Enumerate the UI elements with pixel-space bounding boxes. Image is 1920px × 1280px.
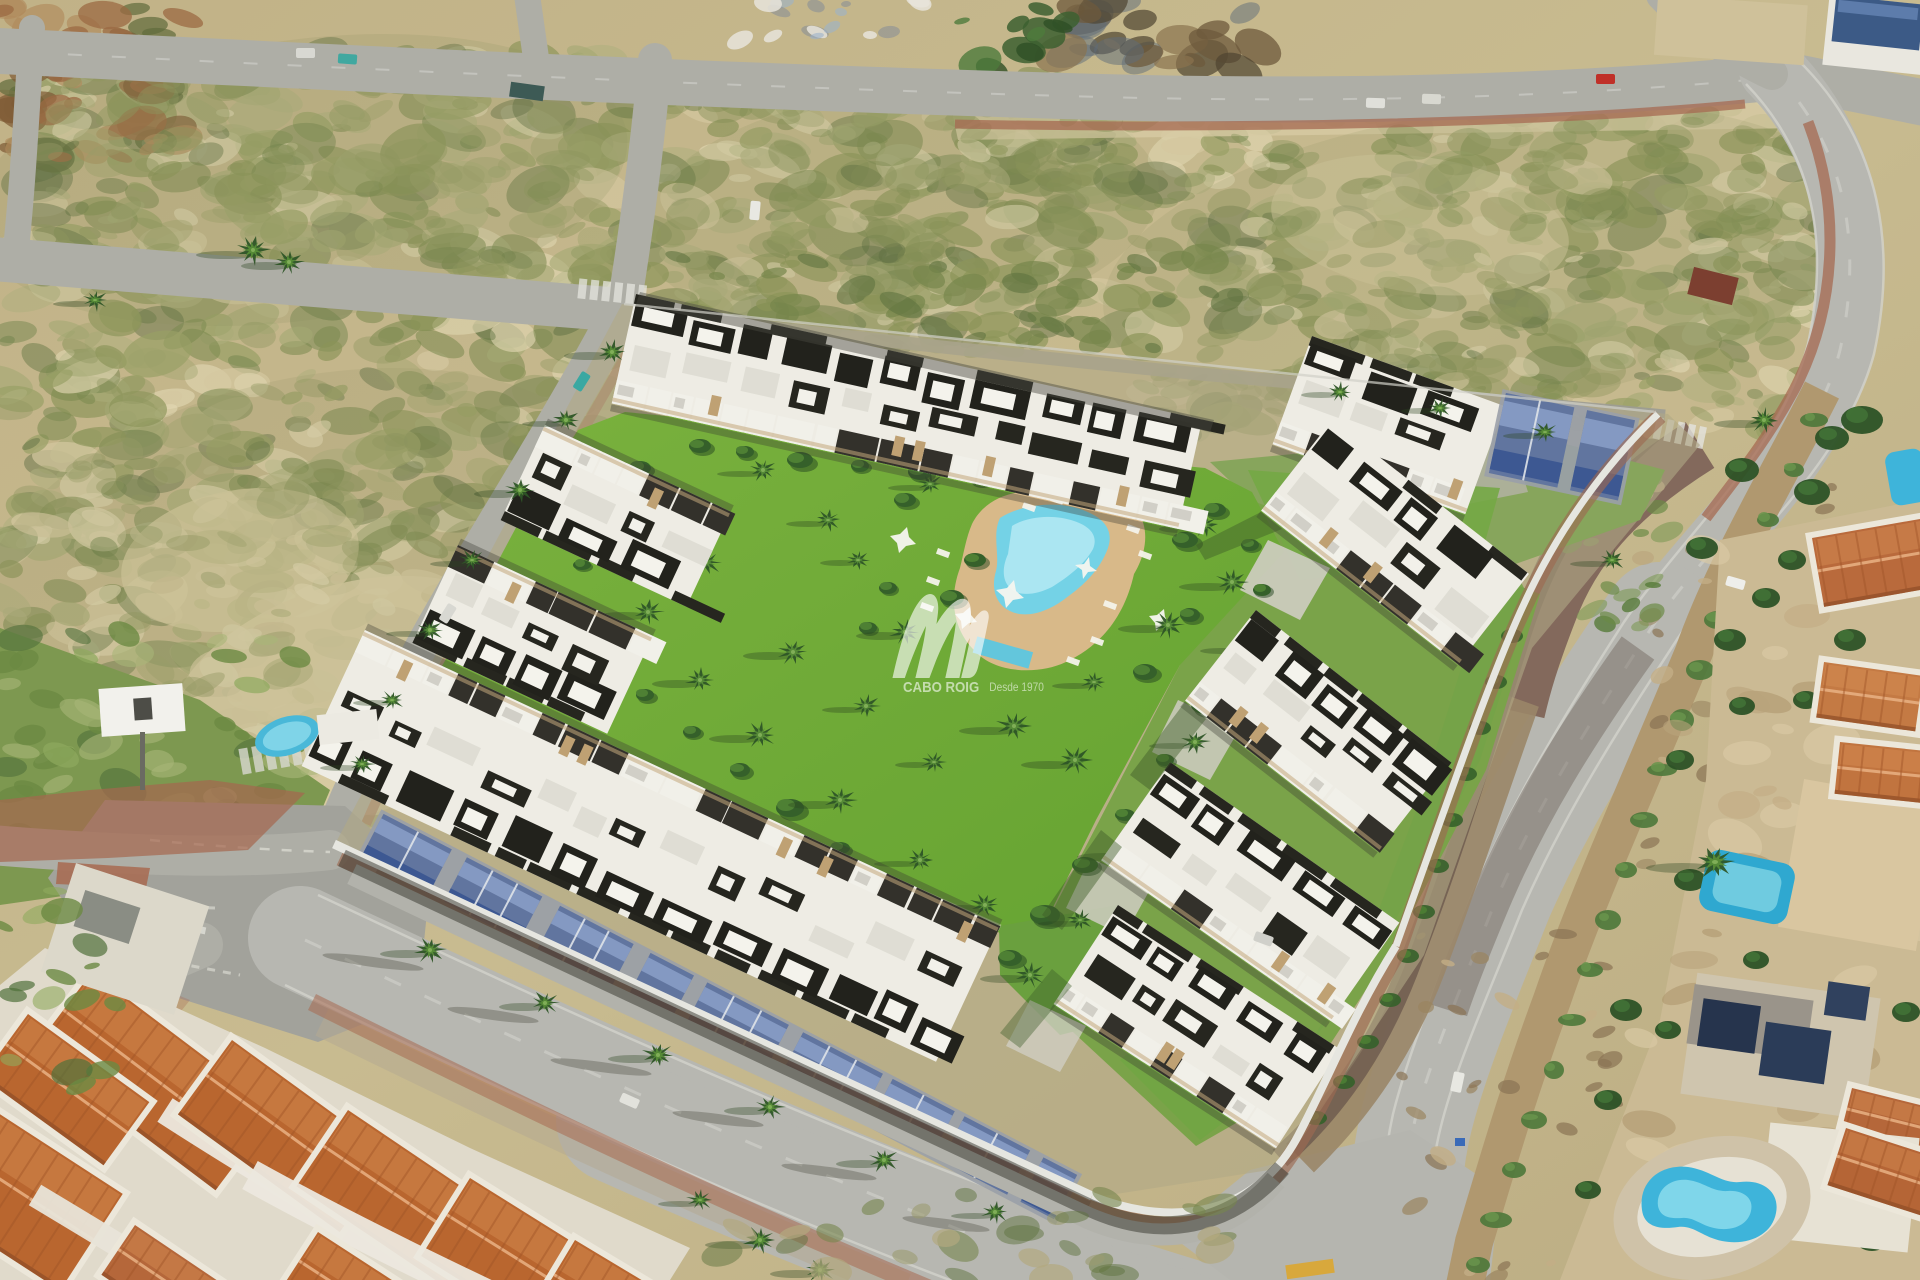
svg-text:Desde 1970: Desde 1970 [989,681,1044,694]
svg-text:CABO ROIG: CABO ROIG [903,678,979,695]
